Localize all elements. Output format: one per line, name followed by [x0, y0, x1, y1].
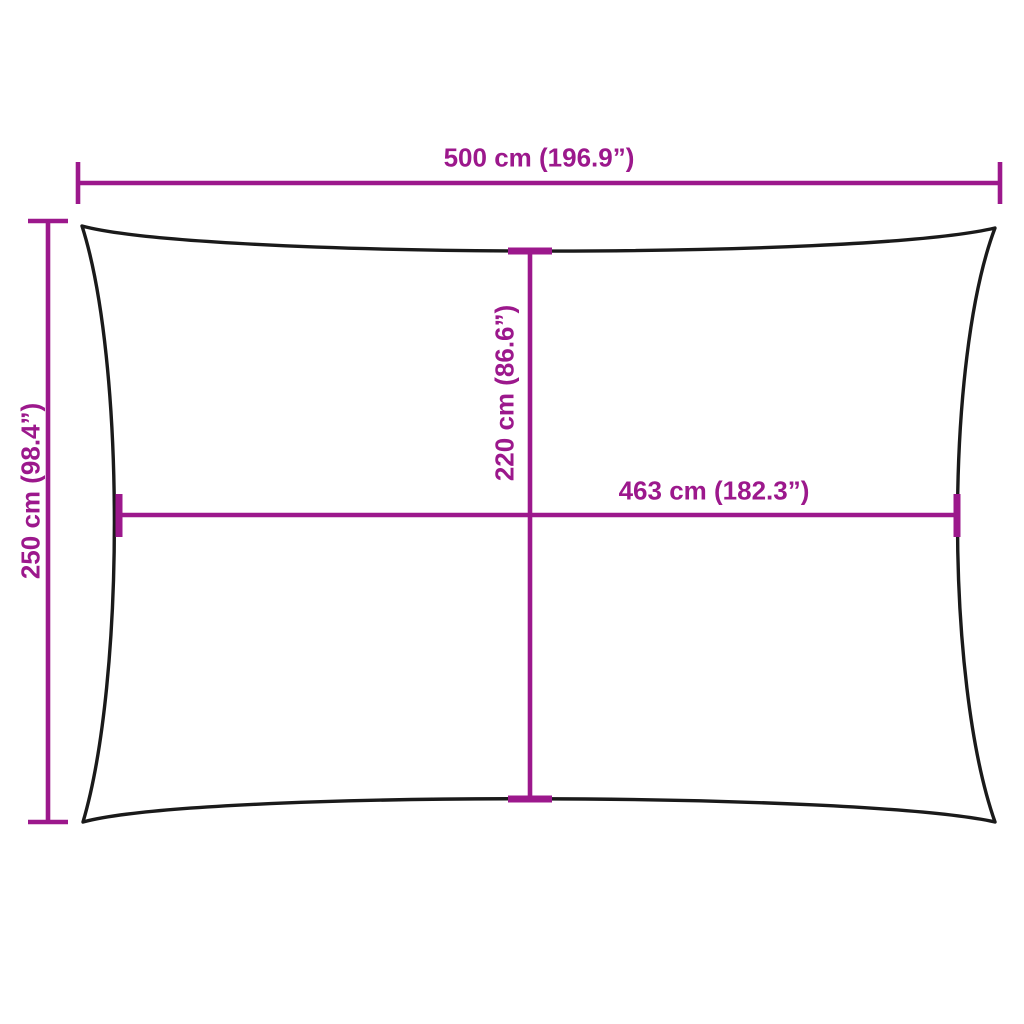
label-inner-width: 463 cm (182.3”): [619, 476, 810, 507]
label-inner-height: 220 cm (86.6”): [490, 305, 521, 481]
label-total-width: 500 cm (196.9”): [444, 143, 635, 174]
dimension-diagram: 500 cm (196.9”) 250 cm (98.4”) 220 cm (8…: [0, 0, 1024, 1024]
label-total-height: 250 cm (98.4”): [16, 403, 47, 579]
sail-outline: [82, 226, 995, 822]
